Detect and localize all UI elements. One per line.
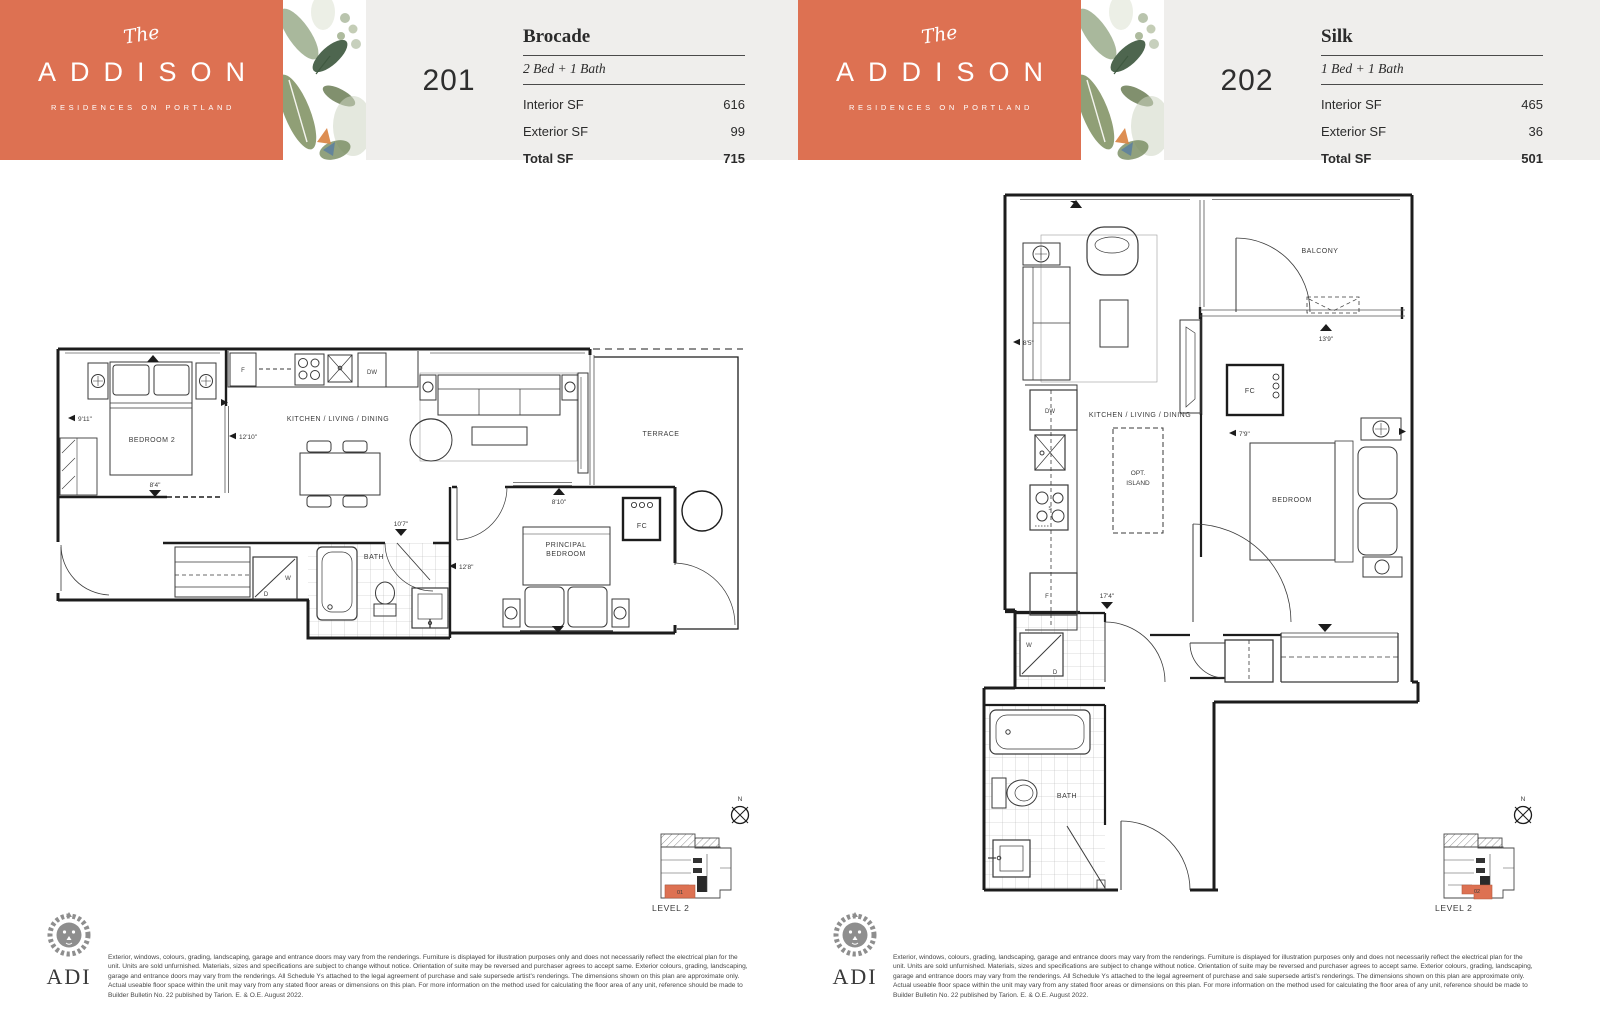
interior-sf-label: Interior SF: [1321, 97, 1382, 112]
exterior-sf-value: 36: [1529, 124, 1543, 139]
exterior-sf-label: Exterior SF: [1321, 124, 1386, 139]
adi-logo-text: ADI: [832, 964, 877, 989]
interior-sf-label: Interior SF: [523, 97, 584, 112]
adi-logo-text: ADI: [46, 964, 91, 989]
exterior-sf-row: Exterior SF 36: [1321, 124, 1543, 139]
compass-icon: N: [1515, 796, 1532, 824]
svg-text:N: N: [1521, 796, 1526, 803]
label-fc: FC: [637, 523, 647, 530]
dim-8-4: 8'4": [150, 482, 161, 489]
label-washer: W: [285, 576, 291, 582]
total-sf-value: 715: [723, 151, 745, 166]
label-kld: KITCHEN / LIVING / DINING: [287, 416, 389, 423]
fan-coil-201: [623, 498, 660, 540]
adi-logo: ADI: [36, 908, 102, 990]
label-principal-2: BEDROOM: [546, 551, 586, 558]
label-opt-2: ISLAND: [1126, 480, 1150, 487]
balcony-202: [1236, 238, 1359, 313]
interior-sf-row: Interior SF 616: [523, 97, 745, 112]
keyplan-201: N 01: [645, 790, 760, 902]
keyplan-unit-label: 02: [1474, 889, 1480, 895]
label-fridge: F: [241, 368, 245, 374]
logo-tagline: RESIDENCES ON PORTLAND: [798, 103, 1081, 112]
unit-number: 201: [404, 64, 494, 98]
dim-7-9: 7'9": [1239, 431, 1250, 438]
disclaimer-text: Exterior, windows, colours, grading, lan…: [893, 953, 1534, 1000]
header-unit-201: The ADDISON RESIDENCES ON PORTLAND 201: [0, 0, 798, 160]
keyplan-202: N 02: [1428, 790, 1543, 902]
level-label: LEVEL 2: [1435, 903, 1472, 913]
dim-8-10: 8'10": [552, 499, 567, 506]
dim-8-5: 8'5": [1023, 340, 1034, 347]
label-kld: KITCHEN / LIVING / DINING: [1089, 412, 1191, 419]
dim-10-7: 10'7": [394, 521, 409, 528]
dining-set: [300, 441, 380, 507]
exterior-sf-value: 99: [731, 124, 745, 139]
dim-17-4: 17'4": [1100, 593, 1115, 600]
label-bath: BATH: [364, 554, 384, 561]
unit-info-table: Silk 1 Bed + 1 Bath Interior SF 465 Exte…: [1321, 26, 1543, 166]
label-bedroom2: BEDROOM 2: [129, 437, 176, 444]
adi-lion-icon: [836, 912, 874, 954]
label-dw: DW: [367, 370, 377, 376]
label-dryer: D: [264, 592, 269, 598]
interior-sf-row: Interior SF 465: [1321, 97, 1543, 112]
dim-12-10: 12'10": [239, 434, 258, 441]
interior-sf-value: 465: [1521, 97, 1543, 112]
floral-artwork: [1081, 0, 1164, 160]
living-furniture-201: [410, 373, 588, 473]
total-sf-row: Total SF 501: [1321, 151, 1543, 166]
header-unit-202: The ADDISON RESIDENCES ON PORTLAND 202: [798, 0, 1600, 160]
floorplan-201: BEDROOM 2 KITCHEN / LIVING / DINING TERR…: [45, 335, 745, 645]
floral-artwork: [283, 0, 366, 160]
label-washer: W: [1026, 643, 1032, 649]
unit-name: Brocade: [523, 26, 745, 56]
disclaimer-text: Exterior, windows, colours, grading, lan…: [108, 953, 749, 1000]
unit-name: Silk: [1321, 26, 1543, 56]
svg-text:N: N: [738, 796, 743, 803]
total-sf-label: Total SF: [1321, 151, 1371, 166]
addison-logo: The ADDISON RESIDENCES ON PORTLAND: [0, 0, 283, 160]
terrace-201: [590, 349, 743, 629]
unit-number: 202: [1202, 64, 1292, 98]
dim-13-9: 13'9": [1319, 336, 1334, 343]
dim-9-11: 9'11": [78, 416, 93, 423]
total-sf-row: Total SF 715: [523, 151, 745, 166]
label-bedroom: BEDROOM: [1272, 497, 1312, 504]
unit-config: 2 Bed + 1 Bath: [523, 56, 745, 85]
label-balcony: BALCONY: [1302, 248, 1339, 255]
level-label: LEVEL 2: [652, 903, 689, 913]
keyplan-unit-label: 01: [677, 890, 683, 896]
unit-config: 1 Bed + 1 Bath: [1321, 56, 1543, 85]
principal-bed: [457, 487, 735, 631]
dim-12-8: 12'8": [459, 564, 474, 571]
adi-logo: ADI: [822, 908, 888, 990]
label-terrace: TERRACE: [643, 431, 680, 438]
logo-tagline: RESIDENCES ON PORTLAND: [0, 103, 283, 112]
kitchen-201: [228, 351, 418, 387]
total-sf-value: 501: [1521, 151, 1543, 166]
hall-closet-wd: [175, 547, 297, 599]
floral-art-icon: [1081, 0, 1164, 160]
dim-arrows-202: [1013, 200, 1406, 632]
entry-door-201: [61, 545, 109, 595]
interior-sf-value: 616: [723, 97, 745, 112]
floral-art-icon: [283, 0, 366, 160]
compass-icon: N: [732, 796, 749, 824]
exterior-sf-row: Exterior SF 99: [523, 124, 745, 139]
label-fc: FC: [1245, 388, 1255, 395]
addison-logo: The ADDISON RESIDENCES ON PORTLAND: [798, 0, 1081, 160]
bedroom-furniture-202: [1193, 418, 1402, 622]
label-bath: BATH: [1057, 793, 1077, 800]
label-opt-1: OPT.: [1131, 470, 1146, 477]
exterior-sf-label: Exterior SF: [523, 124, 588, 139]
floorplan-sheet: The ADDISON RESIDENCES ON PORTLAND 201: [0, 0, 1600, 1035]
label-dw: DW: [1045, 409, 1055, 415]
label-principal-1: PRINCIPAL: [546, 542, 587, 549]
label-stove: S: [1048, 506, 1052, 512]
unit-info-table: Brocade 2 Bed + 1 Bath Interior SF 616 E…: [523, 26, 745, 166]
closets-202: [1190, 633, 1398, 682]
total-sf-label: Total SF: [523, 151, 573, 166]
bedroom2-bed: [60, 362, 216, 495]
label-fridge: F: [1045, 594, 1049, 600]
label-dryer: D: [1053, 670, 1058, 676]
adi-lion-icon: [50, 912, 88, 954]
